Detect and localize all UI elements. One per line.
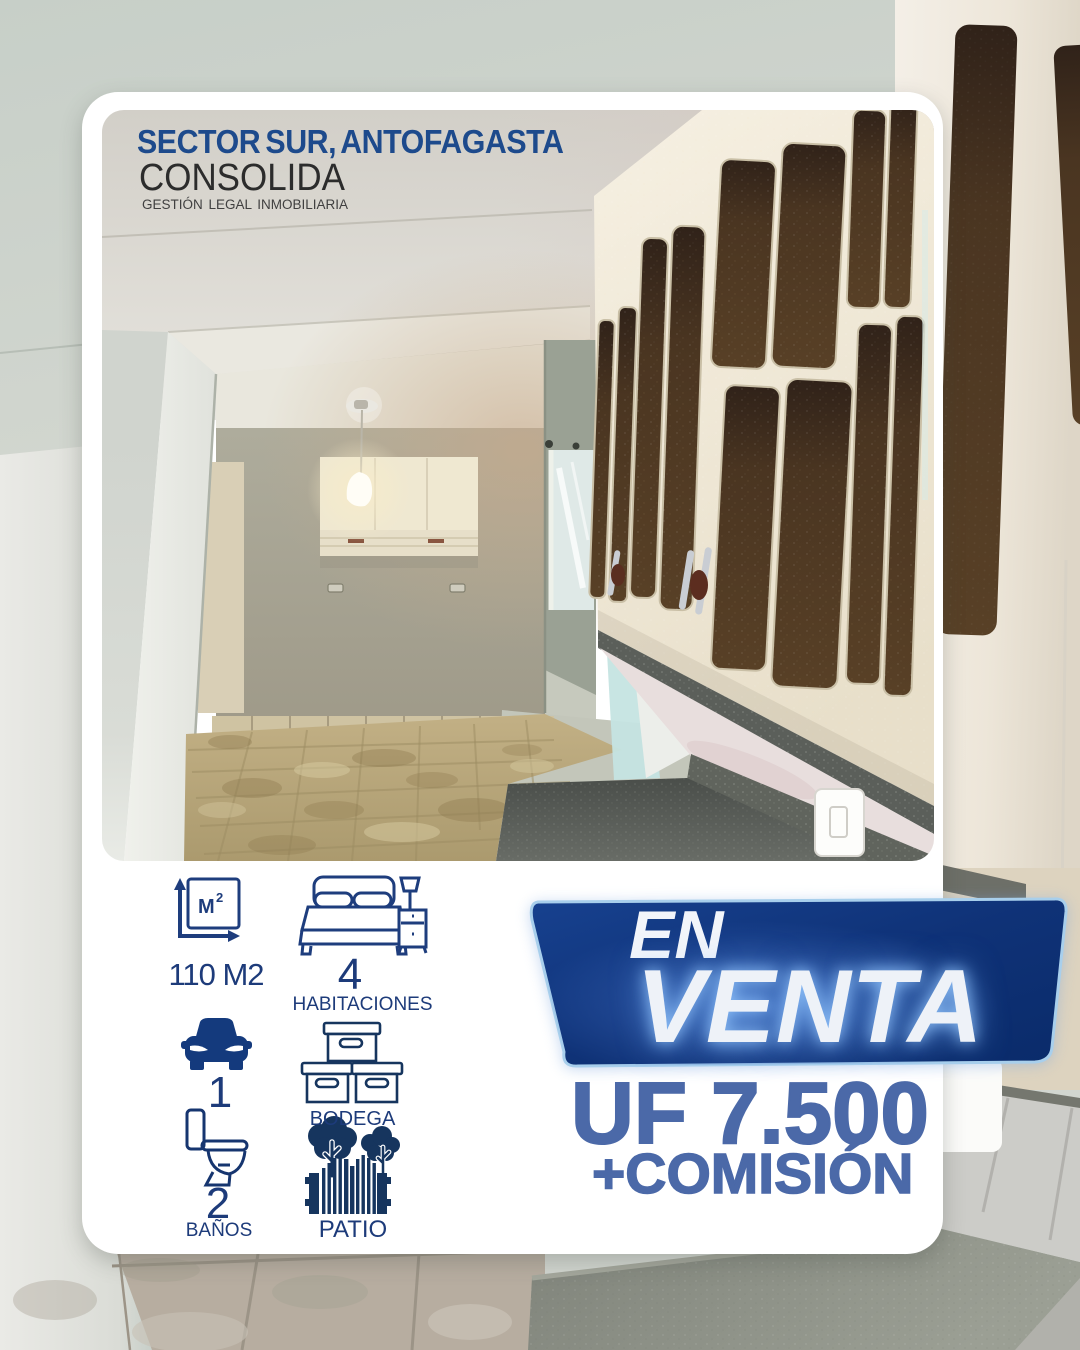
svg-text:2: 2	[216, 890, 223, 905]
svg-text:M: M	[198, 896, 215, 918]
